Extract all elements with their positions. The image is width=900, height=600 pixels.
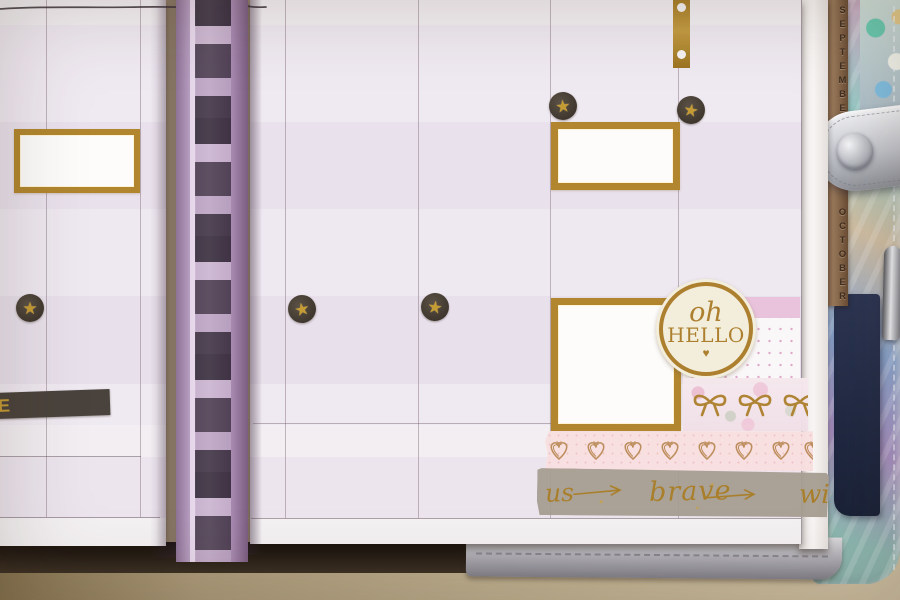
bow-icon (785, 396, 808, 415)
grid-line (251, 518, 801, 519)
heart-icon: ♥ (702, 347, 709, 359)
planner-photo: SEPTEMBER OCTOBER ★ ★ ★ ★ ★ E (0, 0, 900, 600)
grid-line (0, 456, 141, 457)
bow-washi-tape (683, 378, 808, 431)
star-icon: ★ (682, 100, 700, 119)
bow-icon (740, 396, 770, 415)
disc-ring (158, 394, 262, 450)
grid-line (418, 0, 419, 518)
heart-icon (773, 442, 788, 459)
star-icon: ★ (293, 299, 311, 319)
punch-hole (677, 3, 686, 12)
heart-icon (699, 442, 714, 459)
oh-hello-word1: oh (689, 301, 723, 325)
grid-line (46, 0, 47, 517)
grid-line (140, 0, 141, 517)
label-letter: E (0, 395, 10, 417)
heart-icon (625, 442, 640, 459)
heart-icons-row (545, 431, 813, 471)
script-washi-tape: us brave wi (537, 468, 830, 519)
heart-icon (588, 442, 603, 459)
pen (882, 246, 900, 340)
grid-line (0, 517, 160, 518)
punch-hole (677, 50, 686, 59)
heart-icon (662, 442, 677, 459)
gold-punched-strip-sticker (673, 0, 690, 68)
disc-ring (158, 154, 262, 210)
star-icon: ★ (22, 300, 37, 317)
page-gutter-shadow (246, 0, 262, 555)
star-icon: ★ (555, 97, 572, 116)
left-page (0, 0, 166, 546)
arrow-icon (573, 482, 630, 499)
oh-hello-word2: HELLO (667, 325, 745, 346)
bow-icon (695, 396, 725, 415)
star-icon: ★ (426, 298, 443, 317)
bow-icons-row (683, 378, 808, 431)
script-word-wi: wi (799, 480, 830, 510)
heart-washi-tape (545, 431, 813, 471)
star-sticker: ★ (16, 294, 44, 322)
grid-line (253, 423, 552, 424)
heart-icon (551, 442, 566, 459)
script-word-us: us (544, 478, 574, 508)
page-gutter-shadow (150, 0, 178, 558)
label-strip-sticker: E (0, 389, 110, 419)
heart-icon (805, 442, 813, 459)
disc-ring (158, 274, 262, 330)
grid-line (285, 0, 286, 518)
cover-edge-stitching (476, 552, 828, 557)
gold-frame-sticker (14, 129, 140, 193)
oh-hello-sticker: oh HELLO ♥ (656, 279, 756, 379)
gold-frame-sticker (551, 122, 680, 190)
disc-ring (158, 496, 262, 552)
disc-ring (158, 34, 262, 90)
navy-insert (834, 294, 880, 516)
heart-icon (736, 442, 751, 459)
